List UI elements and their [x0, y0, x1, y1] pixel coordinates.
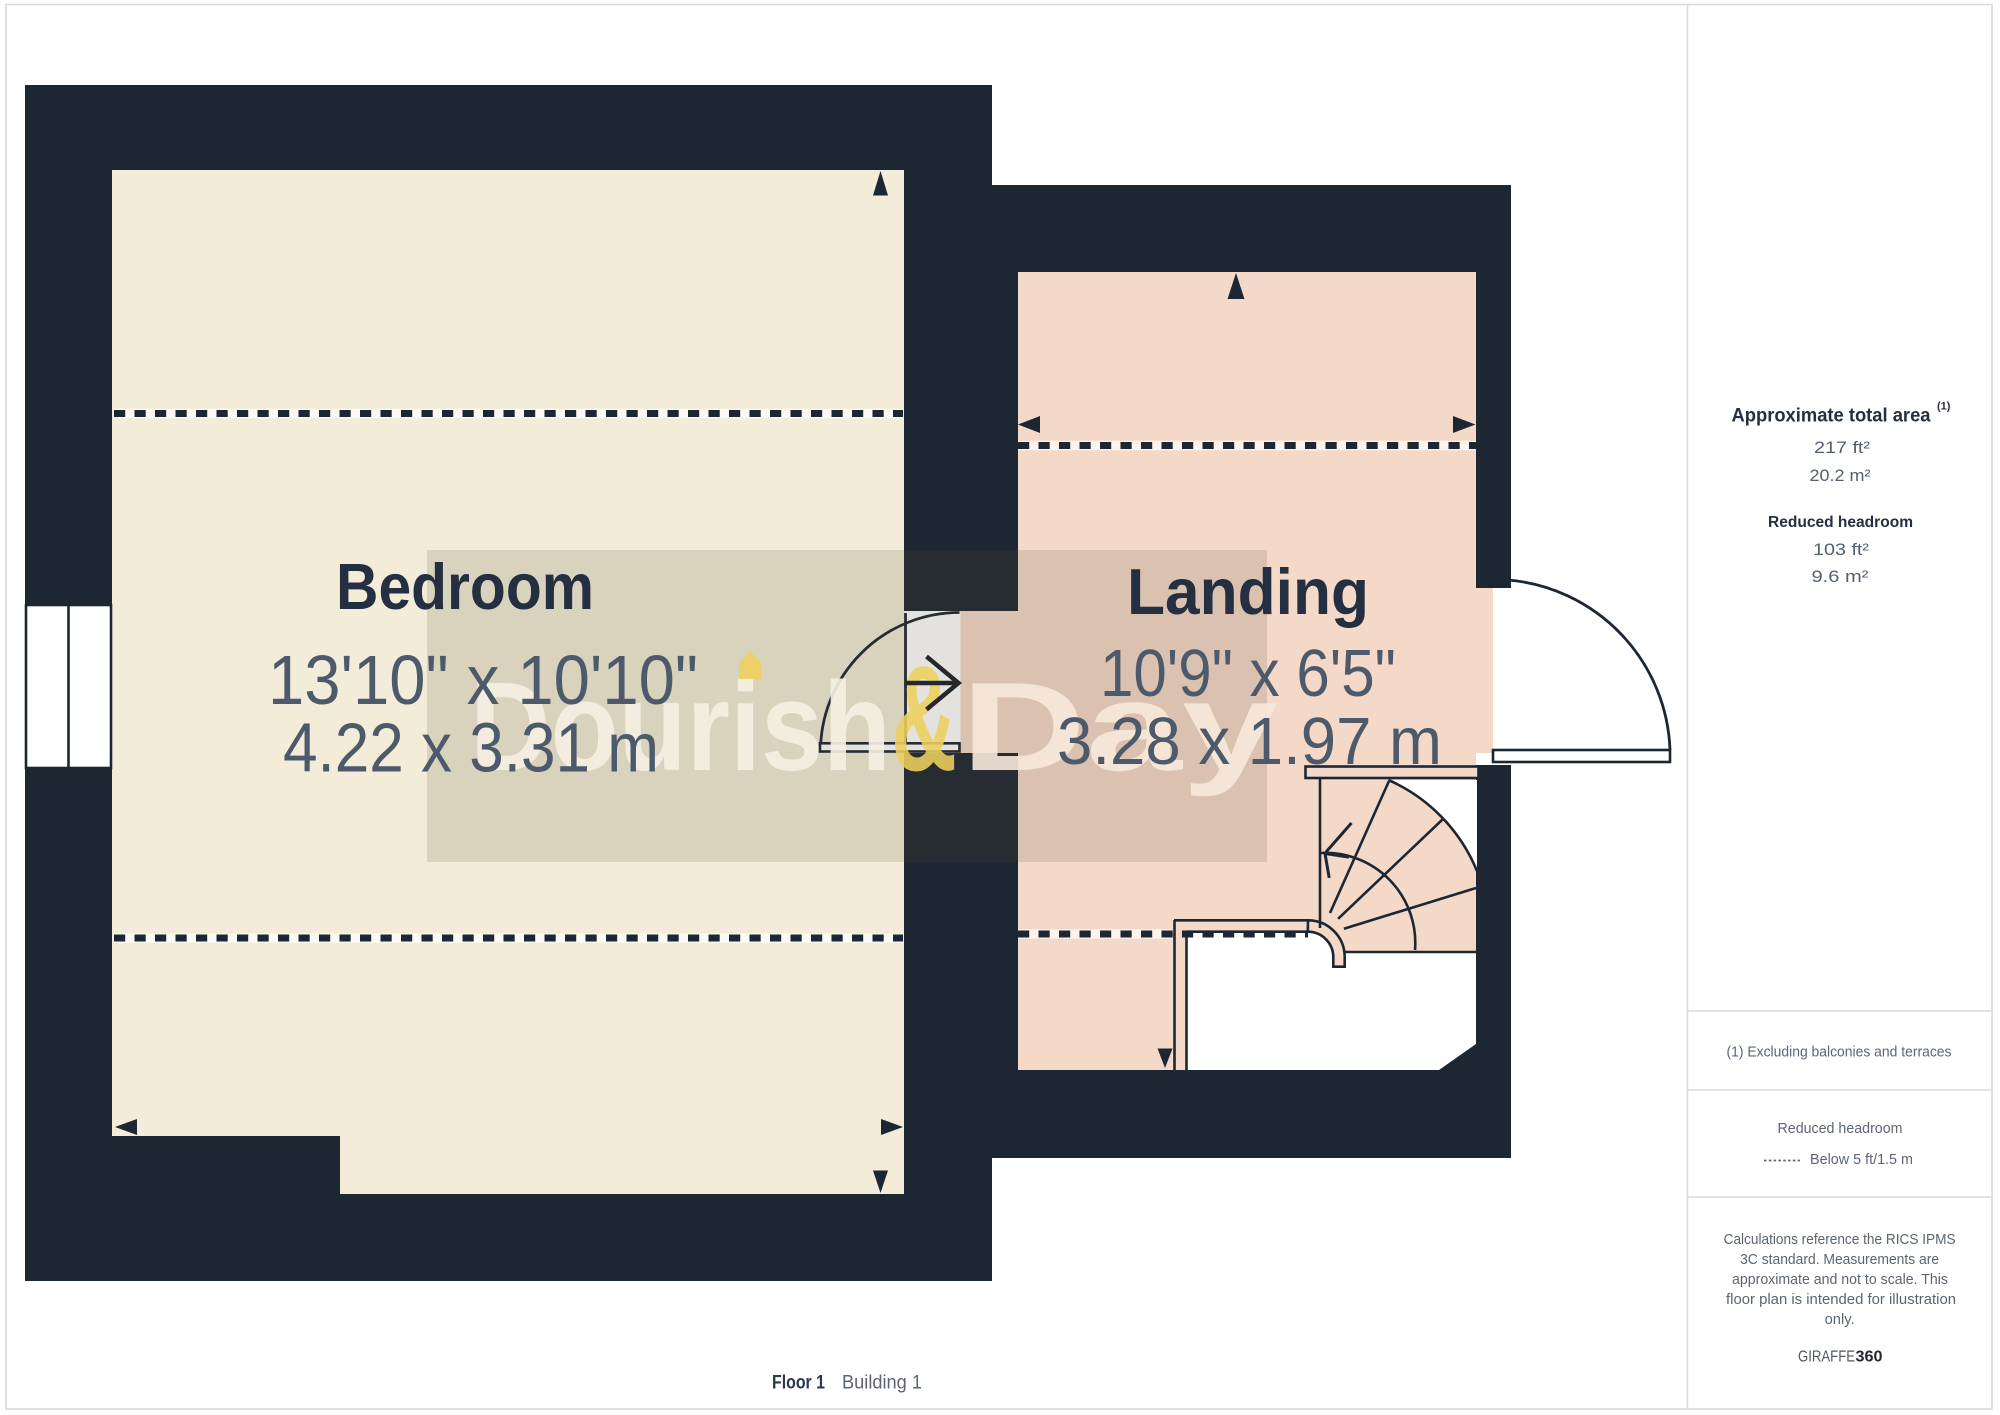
svg-text:Building 1: Building 1: [842, 1372, 922, 1394]
svg-text:GIRAFFE: GIRAFFE: [1798, 1349, 1855, 1366]
svg-text:Floor 1: Floor 1: [772, 1372, 825, 1394]
svg-text:4.22 x 3.31 m: 4.22 x 3.31 m: [283, 709, 659, 787]
svg-text:Approximate total area: Approximate total area: [1732, 405, 1931, 427]
svg-text:3.28 x 1.97 m: 3.28 x 1.97 m: [1057, 704, 1442, 779]
svg-text:(1): (1): [1937, 401, 1951, 413]
svg-text:217 ft²: 217 ft²: [1814, 439, 1871, 457]
svg-text:Reduced headroom: Reduced headroom: [1768, 514, 1913, 531]
svg-text:&: &: [891, 634, 957, 802]
svg-text:13'10" x 10'10": 13'10" x 10'10": [268, 641, 698, 719]
svg-text:Landing: Landing: [1127, 555, 1369, 628]
svg-text:approximate and not to scale.: approximate and not to scale. This: [1732, 1271, 1948, 1288]
svg-text:9.6 m²: 9.6 m²: [1812, 568, 1870, 586]
svg-text:3C standard. Measurements are: 3C standard. Measurements are: [1740, 1251, 1939, 1268]
svg-text:Bedroom: Bedroom: [336, 550, 594, 623]
svg-text:20.2 m²: 20.2 m²: [1810, 467, 1872, 485]
svg-text:10'9" x 6'5": 10'9" x 6'5": [1100, 636, 1396, 711]
svg-text:Below 5 ft/1.5 m: Below 5 ft/1.5 m: [1810, 1152, 1913, 1168]
svg-text:only.: only.: [1825, 1311, 1855, 1328]
svg-text:103 ft²: 103 ft²: [1813, 541, 1870, 559]
svg-text:(1) Excluding balconies and te: (1) Excluding balconies and terraces: [1727, 1045, 1952, 1061]
svg-text:floor plan is intended for ill: floor plan is intended for illustration: [1726, 1291, 1956, 1308]
svg-text:Reduced headroom: Reduced headroom: [1778, 1121, 1903, 1137]
svg-text:360: 360: [1856, 1349, 1883, 1366]
svg-text:Calculations reference the RIC: Calculations reference the RICS IPMS: [1724, 1231, 1956, 1248]
